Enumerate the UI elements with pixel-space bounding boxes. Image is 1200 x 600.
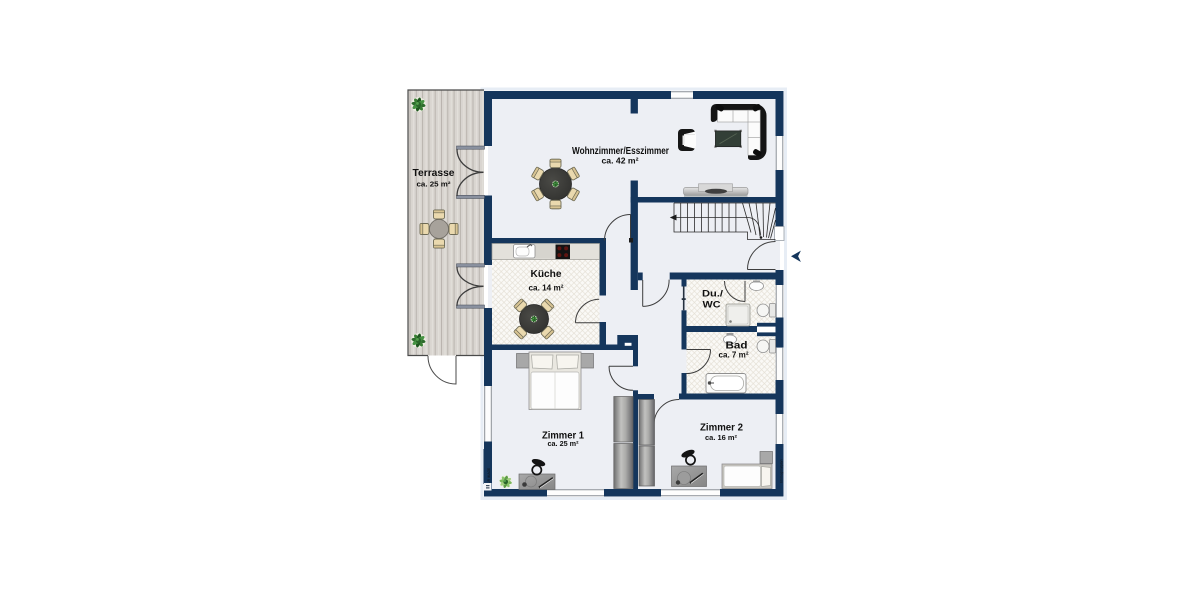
- svg-text:Immoginalplan: Immoginalplan: [779, 459, 783, 482]
- svg-text:ca. 7 m²: ca. 7 m²: [719, 351, 749, 360]
- svg-text:ca. 14 m²: ca. 14 m²: [529, 284, 564, 293]
- svg-text:ca. 25 m²: ca. 25 m²: [548, 439, 579, 448]
- svg-text:Küche: Küche: [531, 269, 562, 280]
- svg-text:ca. 16 m²: ca. 16 m²: [705, 433, 737, 442]
- svg-text:WC: WC: [703, 300, 721, 311]
- svg-text:Terrasse: Terrasse: [413, 168, 455, 179]
- svg-text:Du./: Du./: [702, 289, 723, 300]
- svg-text:Wohnzimmer/Esszimmer: Wohnzimmer/Esszimmer: [572, 146, 669, 157]
- svg-text:ca. 42 m²: ca. 42 m²: [602, 157, 639, 166]
- svg-text:Zimmer 2: Zimmer 2: [700, 423, 743, 434]
- svg-text:ca. 25 m²: ca. 25 m²: [417, 179, 452, 188]
